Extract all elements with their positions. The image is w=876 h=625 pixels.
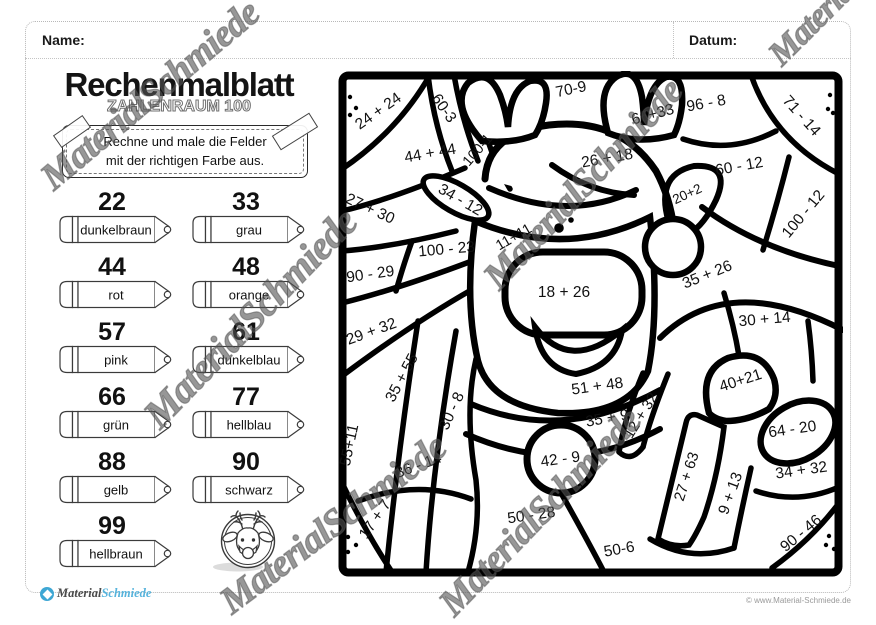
svg-text:dunkelbraun: dunkelbraun xyxy=(80,223,152,238)
svg-text:hellblau: hellblau xyxy=(227,418,272,433)
svg-text:grün: grün xyxy=(103,418,129,433)
svg-text:hellbraun: hellbraun xyxy=(89,547,143,562)
svg-text:schwarz: schwarz xyxy=(225,483,273,498)
svg-text:pink: pink xyxy=(104,353,128,368)
svg-text:gelb: gelb xyxy=(104,483,129,498)
svg-text:rot: rot xyxy=(108,288,124,303)
svg-text:18 + 26: 18 + 26 xyxy=(538,284,590,301)
svg-text:grau: grau xyxy=(236,223,262,238)
